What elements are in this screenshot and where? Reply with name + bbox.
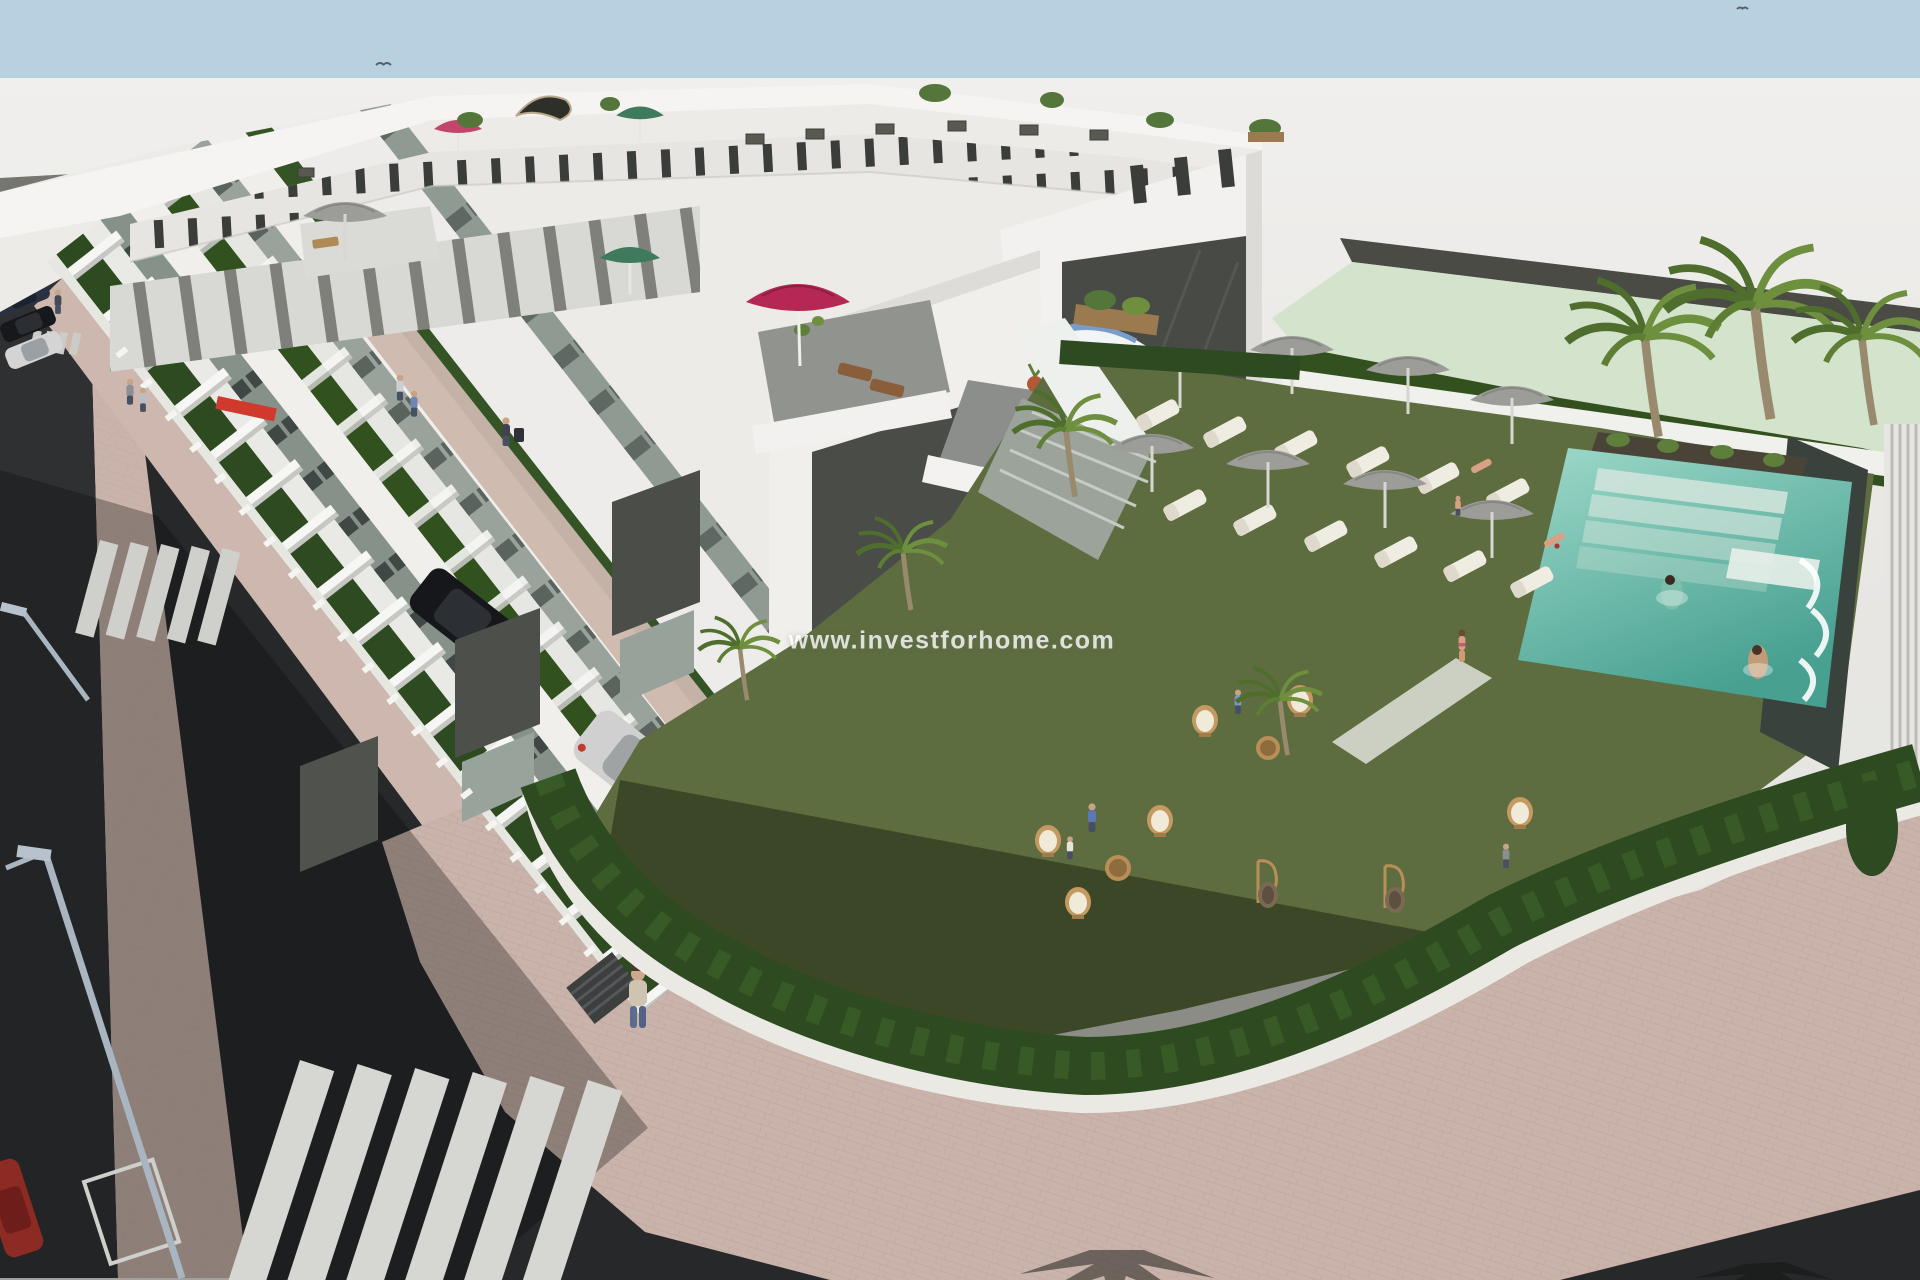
luggage	[514, 428, 524, 442]
pedestrian	[502, 417, 510, 446]
walking-woman	[1458, 630, 1465, 662]
render-image: www.investforhome.com	[0, 0, 1920, 1280]
hedge-top	[1060, 352, 1300, 368]
pedestrian	[396, 375, 403, 401]
pool-fence	[1884, 424, 1920, 780]
pedestrian	[126, 379, 133, 405]
sky	[0, 0, 1920, 80]
hedge-right	[1846, 780, 1898, 876]
standing-person	[1088, 803, 1096, 832]
pedestrian	[55, 290, 62, 314]
seated-person	[1503, 844, 1510, 868]
pedestrian	[140, 388, 147, 412]
watermark: www.investforhome.com	[789, 627, 1115, 656]
pedestrian	[410, 391, 417, 417]
seated-person	[1067, 836, 1073, 859]
